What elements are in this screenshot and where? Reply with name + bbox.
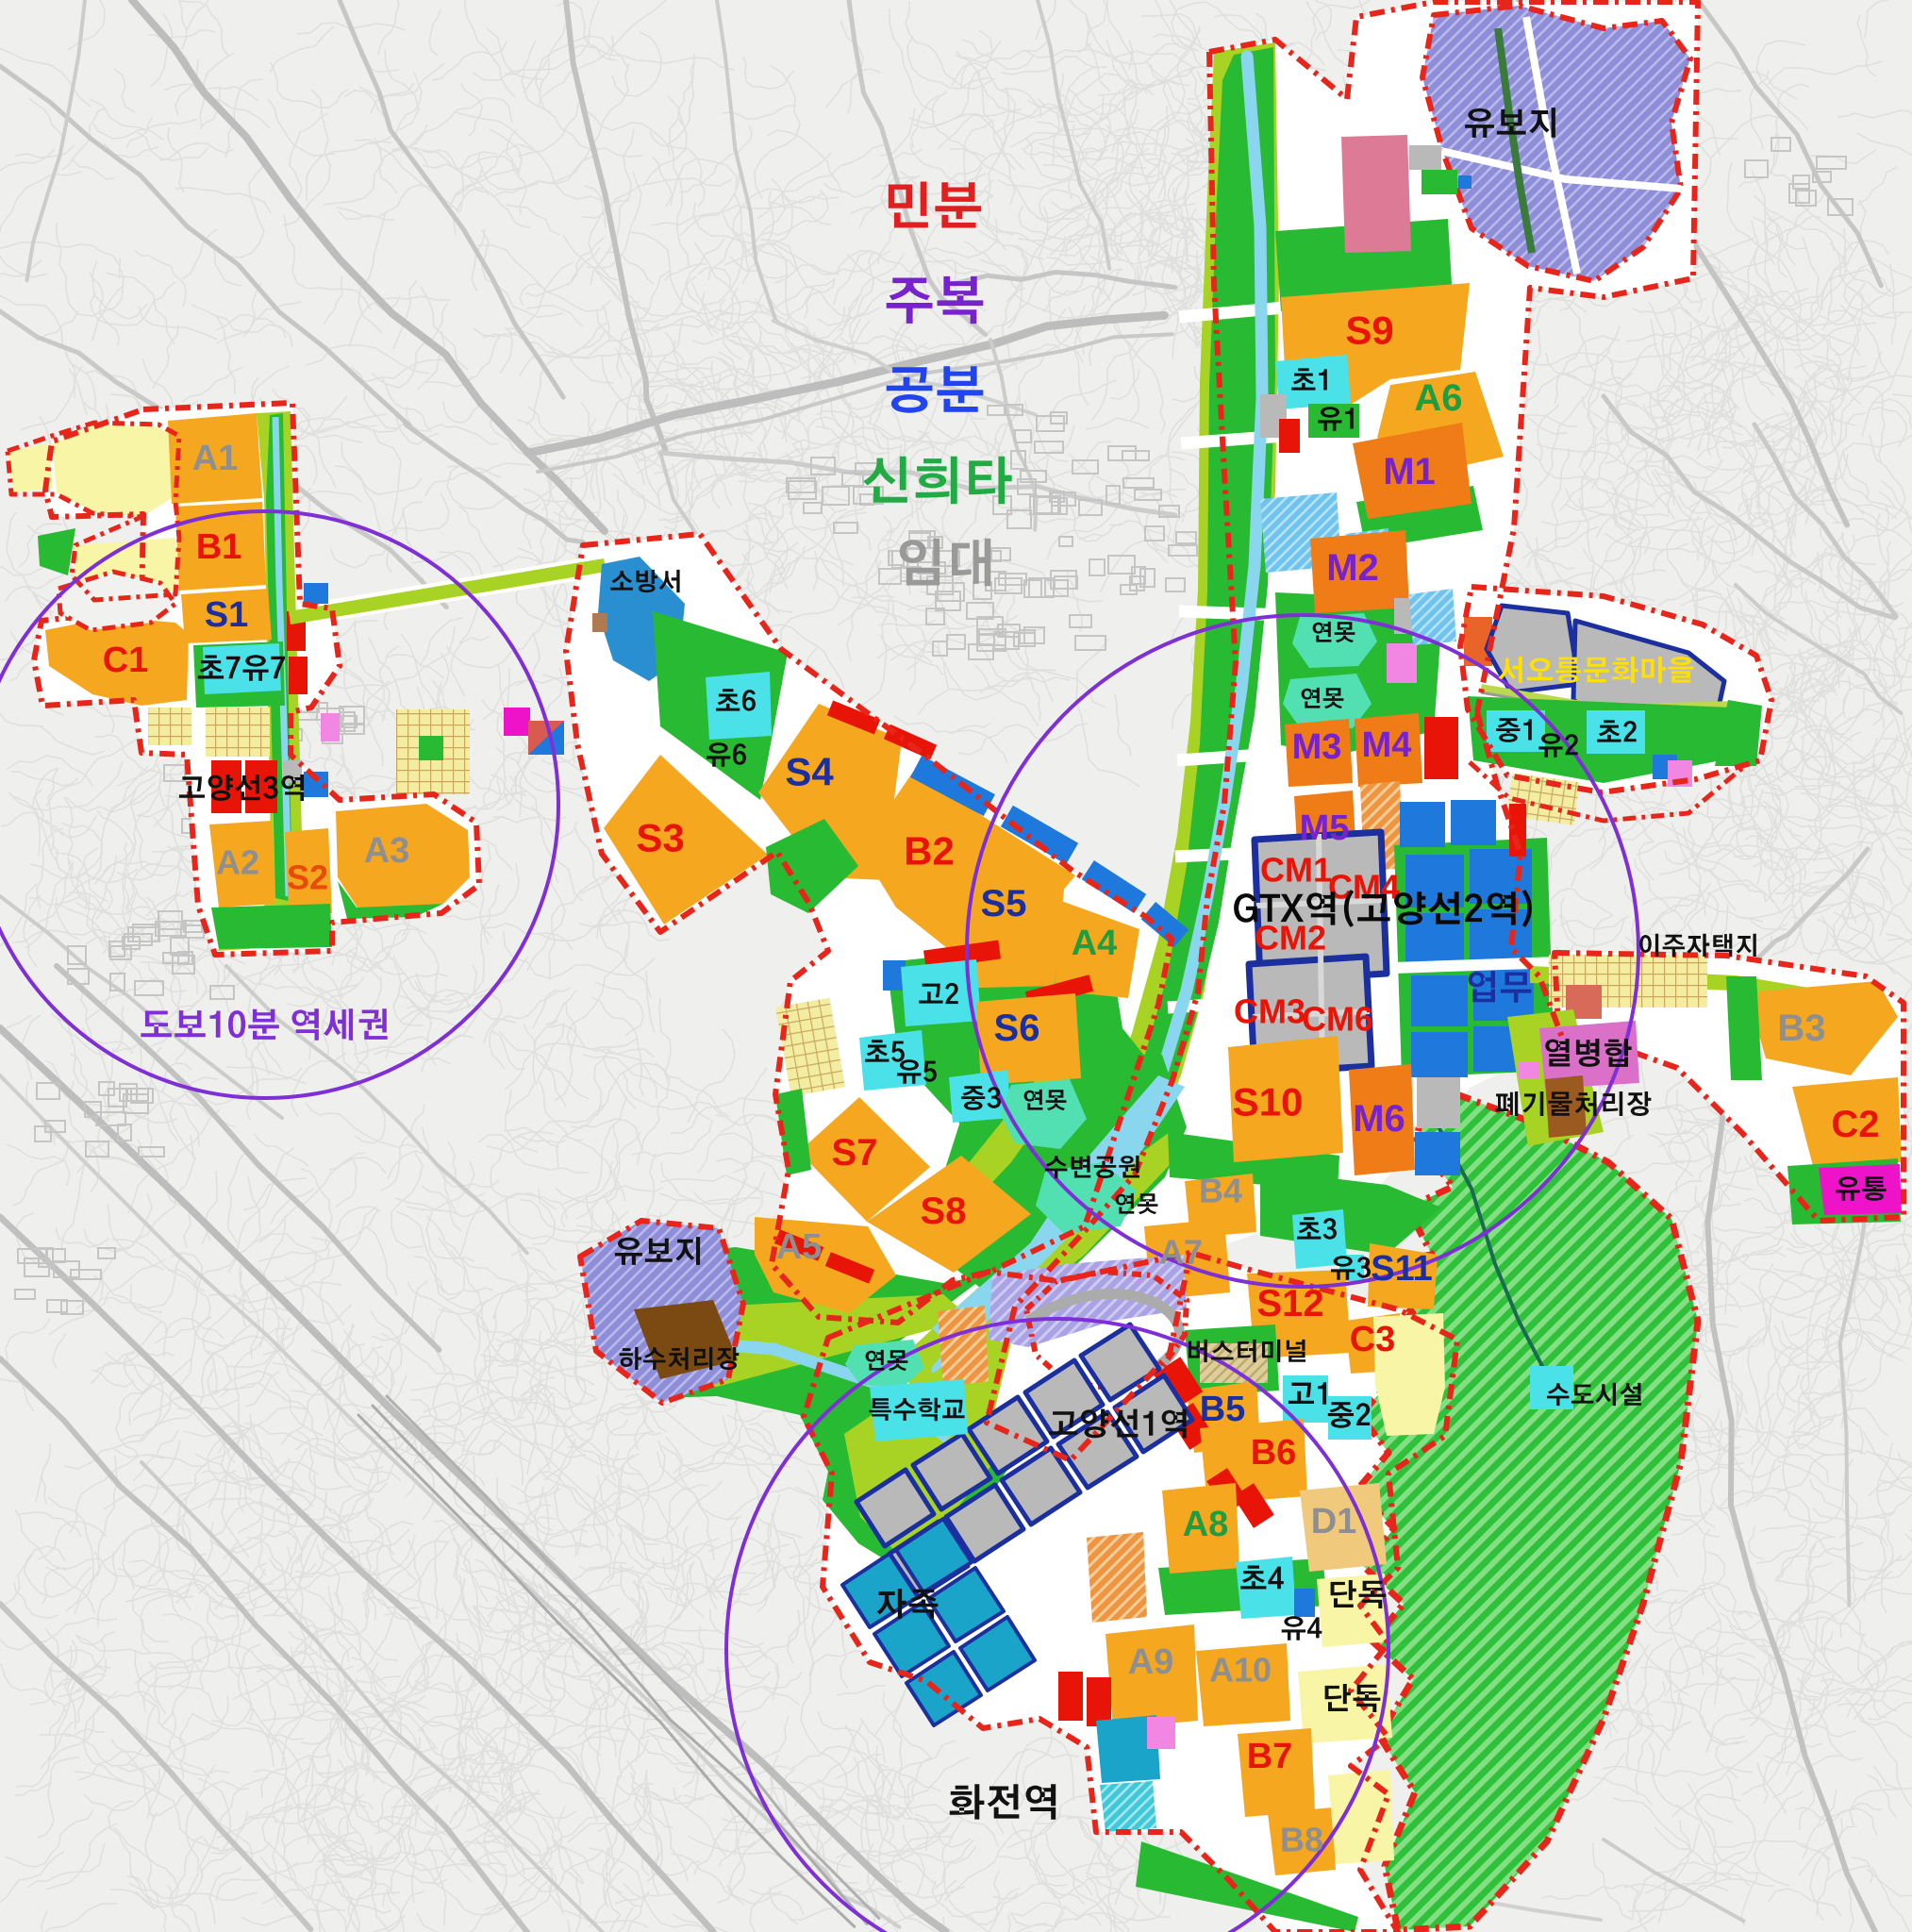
svg-text:A10: A10 (1209, 1651, 1272, 1690)
svg-text:A4: A4 (1072, 924, 1118, 963)
svg-text:B3: B3 (1777, 1008, 1825, 1049)
svg-text:M2: M2 (1326, 547, 1379, 589)
svg-text:A6: A6 (1414, 377, 1462, 419)
svg-text:S7: S7 (832, 1132, 878, 1174)
svg-text:A7: A7 (1159, 1233, 1203, 1272)
svg-text:S11: S11 (1371, 1249, 1433, 1289)
svg-text:CM1: CM1 (1260, 851, 1332, 890)
svg-text:B8: B8 (1280, 1821, 1323, 1859)
svg-text:M6: M6 (1353, 1098, 1405, 1140)
svg-text:S2: S2 (287, 858, 328, 897)
svg-text:A8: A8 (1183, 1505, 1229, 1544)
svg-text:S3: S3 (636, 816, 684, 860)
svg-text:A2: A2 (216, 843, 259, 882)
svg-text:S9: S9 (1345, 308, 1393, 353)
svg-text:S6: S6 (994, 1008, 1040, 1049)
svg-text:B7: B7 (1247, 1737, 1293, 1776)
svg-text:M3: M3 (1292, 727, 1342, 767)
svg-text:CM6: CM6 (1302, 1000, 1373, 1039)
svg-text:CM2: CM2 (1255, 919, 1326, 958)
svg-text:C1: C1 (103, 641, 149, 680)
svg-text:S5: S5 (981, 883, 1027, 924)
svg-text:S12: S12 (1256, 1283, 1323, 1324)
svg-text:D1: D1 (1311, 1502, 1357, 1541)
svg-text:M5: M5 (1300, 808, 1350, 848)
svg-text:S8: S8 (921, 1191, 967, 1232)
svg-text:C3: C3 (1350, 1320, 1396, 1359)
svg-text:M1: M1 (1383, 451, 1436, 492)
svg-text:S4: S4 (785, 750, 834, 794)
svg-text:S10: S10 (1233, 1080, 1304, 1124)
svg-text:B2: B2 (904, 829, 955, 874)
svg-text:A1: A1 (192, 439, 239, 478)
svg-text:A9: A9 (1128, 1642, 1174, 1682)
svg-text:CM3: CM3 (1234, 992, 1305, 1031)
svg-text:B5: B5 (1200, 1390, 1246, 1429)
svg-text:C2: C2 (1831, 1104, 1879, 1145)
svg-text:B6: B6 (1251, 1433, 1297, 1473)
svg-text:A3: A3 (364, 831, 410, 871)
svg-text:M4: M4 (1362, 725, 1412, 765)
svg-text:A5: A5 (776, 1227, 823, 1267)
svg-text:CM4: CM4 (1328, 868, 1400, 907)
svg-text:S1: S1 (205, 595, 248, 635)
svg-text:B4: B4 (1199, 1172, 1242, 1210)
svg-text:B1: B1 (196, 527, 242, 567)
